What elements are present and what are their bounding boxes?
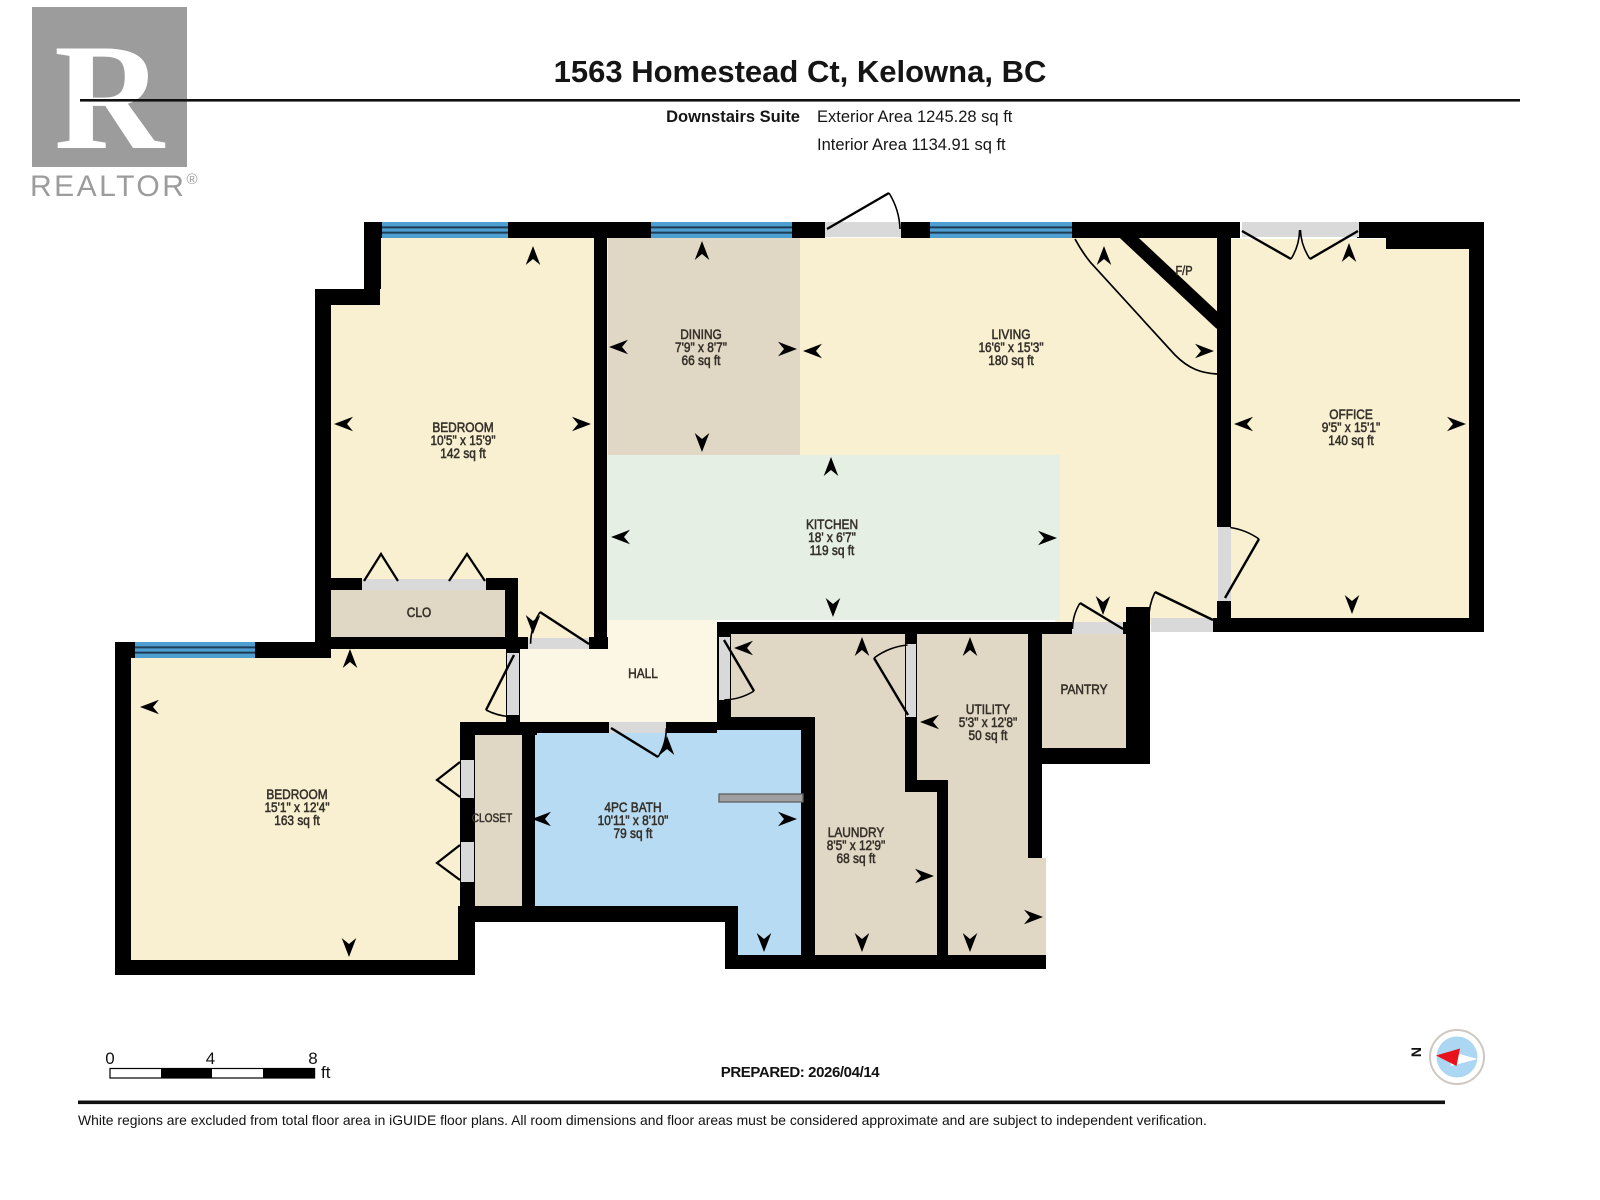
svg-text:163 sq ft: 163 sq ft <box>274 812 320 828</box>
svg-text:119 sq ft: 119 sq ft <box>810 542 855 558</box>
svg-text:HALL: HALL <box>628 665 658 681</box>
svg-text:ft: ft <box>321 1063 331 1082</box>
svg-text:66 sq ft: 66 sq ft <box>682 352 721 368</box>
svg-text:68 sq ft: 68 sq ft <box>837 850 876 866</box>
svg-text:1563 Homestead Ct, Kelowna, BC: 1563 Homestead Ct, Kelowna, BC <box>554 54 1047 89</box>
svg-text:0: 0 <box>105 1049 114 1068</box>
svg-text:8: 8 <box>308 1049 317 1068</box>
svg-text:140 sq ft: 140 sq ft <box>1328 432 1374 448</box>
svg-text:N: N <box>1408 1047 1424 1057</box>
svg-text:REALTOR®: REALTOR® <box>30 170 200 203</box>
svg-text:PANTRY: PANTRY <box>1060 681 1108 697</box>
svg-text:White regions are excluded fro: White regions are excluded from total fl… <box>78 1112 1207 1128</box>
svg-text:PREPARED: 2026/04/14: PREPARED: 2026/04/14 <box>721 1064 881 1081</box>
svg-text:CLO: CLO <box>407 604 432 620</box>
svg-text:4: 4 <box>206 1049 215 1068</box>
svg-text:F/P: F/P <box>1175 264 1192 278</box>
svg-text:R: R <box>54 13 166 181</box>
svg-text:Exterior Area 1245.28 sq ft: Exterior Area 1245.28 sq ft <box>817 108 1013 126</box>
svg-text:79 sq ft: 79 sq ft <box>614 825 653 841</box>
svg-text:CLOSET: CLOSET <box>472 812 513 825</box>
svg-text:180 sq ft: 180 sq ft <box>988 352 1034 368</box>
svg-text:Interior Area 1134.91 sq ft: Interior Area 1134.91 sq ft <box>817 136 1006 154</box>
svg-text:Downstairs Suite: Downstairs Suite <box>666 108 800 126</box>
svg-text:142 sq ft: 142 sq ft <box>440 445 486 461</box>
svg-text:50 sq ft: 50 sq ft <box>969 727 1008 743</box>
